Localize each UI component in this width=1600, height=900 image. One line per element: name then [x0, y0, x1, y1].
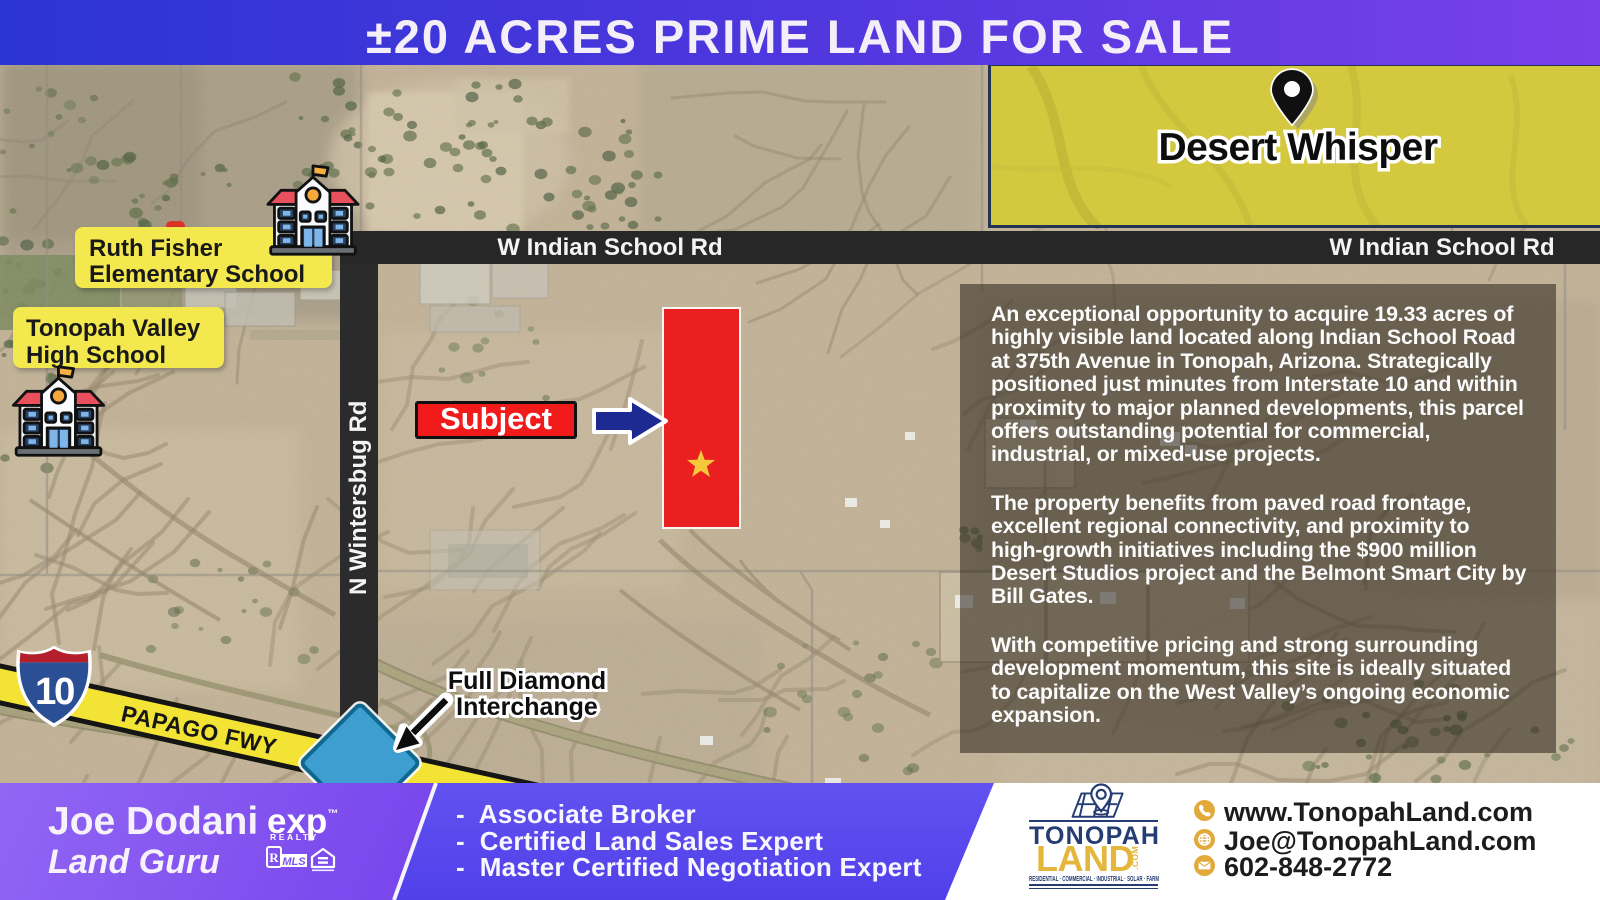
svg-text:.COM: .COM	[1130, 846, 1140, 870]
svg-text:MLS: MLS	[282, 856, 306, 868]
svg-text:LAND: LAND	[1036, 840, 1134, 879]
svg-text:Full Diamond: Full Diamond	[448, 667, 606, 695]
svg-text:10: 10	[35, 670, 74, 713]
svg-text:Interchange: Interchange	[456, 693, 598, 721]
svg-text:R: R	[269, 850, 279, 865]
svg-text:Desert Whisper: Desert Whisper	[1158, 126, 1437, 169]
svg-text:RESIDENTIAL · COMMERCIAL · IND: RESIDENTIAL · COMMERCIAL · INDUSTRIAL · …	[1029, 876, 1159, 883]
